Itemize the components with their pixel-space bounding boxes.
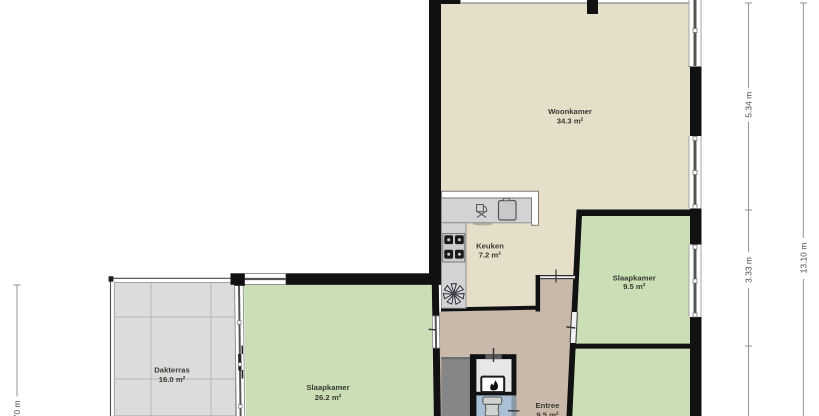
svg-text:26.2 m²: 26.2 m² xyxy=(315,393,342,402)
svg-text:3.33 m: 3.33 m xyxy=(744,257,754,283)
svg-text:34.3 m²: 34.3 m² xyxy=(557,117,584,126)
svg-text:6.70 m: 6.70 m xyxy=(12,401,22,416)
svg-text:Woonkamer: Woonkamer xyxy=(548,107,592,116)
svg-text:16.0 m²: 16.0 m² xyxy=(159,375,186,384)
svg-text:9.5 m²: 9.5 m² xyxy=(536,411,559,416)
svg-text:Entree: Entree xyxy=(536,401,561,410)
svg-text:7.2 m²: 7.2 m² xyxy=(479,250,502,259)
svg-text:5.34 m: 5.34 m xyxy=(744,92,754,118)
svg-text:Keuken: Keuken xyxy=(476,241,504,250)
svg-text:13.10 m: 13.10 m xyxy=(798,243,808,274)
svg-text:Dakterras: Dakterras xyxy=(154,366,189,375)
svg-text:9.5 m²: 9.5 m² xyxy=(623,282,646,291)
svg-text:Slaapkamer: Slaapkamer xyxy=(306,383,349,392)
